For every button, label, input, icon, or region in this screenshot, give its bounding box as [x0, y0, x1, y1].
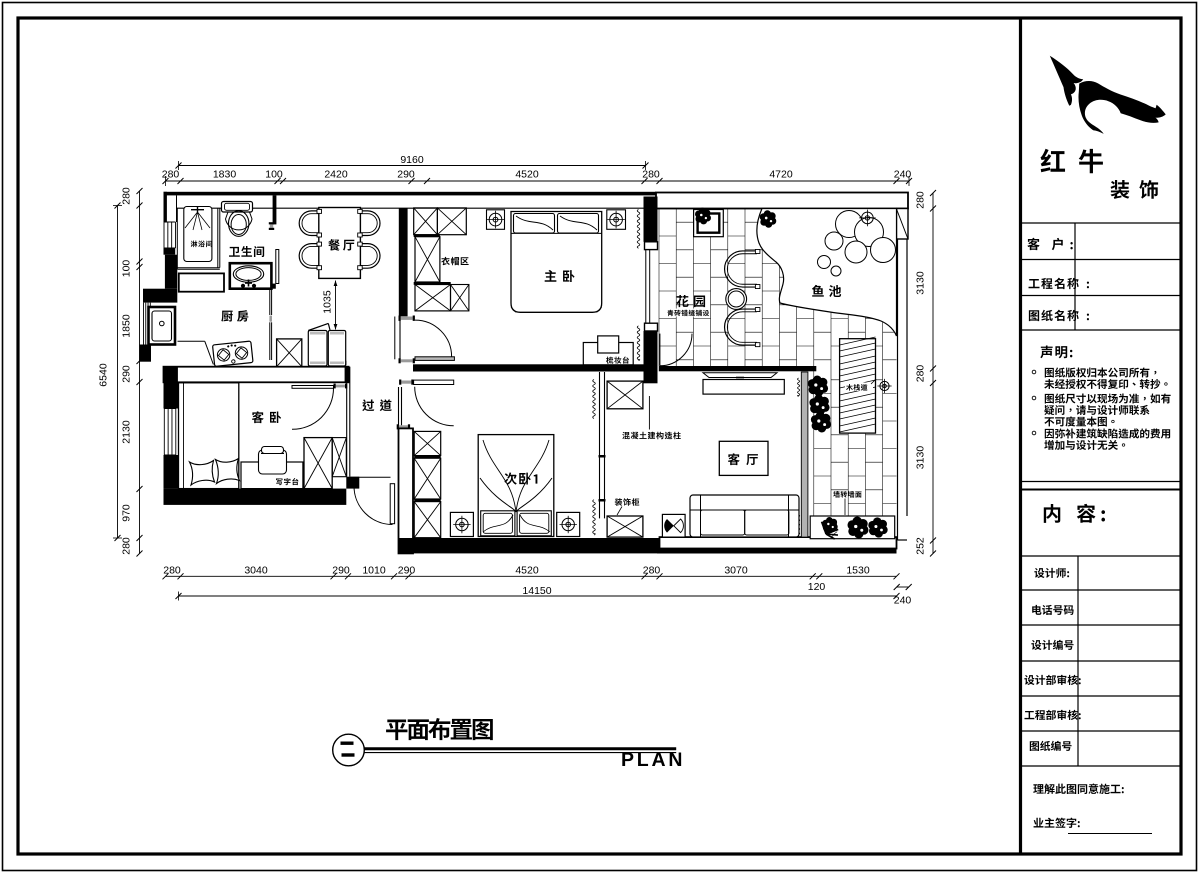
svg-text:100: 100: [265, 169, 283, 181]
svg-text:4720: 4720: [769, 169, 793, 181]
svg-text:1010: 1010: [362, 565, 386, 577]
svg-text:1035: 1035: [322, 290, 334, 314]
svg-text:14150: 14150: [522, 585, 551, 597]
svg-text:3130: 3130: [915, 271, 927, 295]
svg-text:1530: 1530: [846, 565, 870, 577]
svg-text:2420: 2420: [324, 169, 348, 181]
svg-text:290: 290: [397, 169, 415, 181]
svg-text:280: 280: [121, 187, 133, 205]
svg-text:280: 280: [162, 169, 180, 181]
svg-text:3130: 3130: [915, 446, 927, 470]
svg-text:280: 280: [915, 365, 927, 383]
svg-text:280: 280: [163, 565, 181, 577]
svg-text:280: 280: [121, 537, 133, 555]
svg-text:280: 280: [643, 565, 661, 577]
svg-text:3040: 3040: [244, 565, 268, 577]
svg-text:4520: 4520: [515, 565, 539, 577]
svg-text:9160: 9160: [400, 154, 424, 166]
svg-text:1830: 1830: [213, 169, 237, 181]
svg-text:6540: 6540: [98, 363, 110, 387]
svg-text:290: 290: [121, 365, 133, 383]
svg-text:100: 100: [121, 260, 133, 278]
svg-text:4520: 4520: [515, 169, 539, 181]
svg-text:2130: 2130: [121, 420, 133, 444]
svg-text:290: 290: [332, 565, 350, 577]
svg-text:290: 290: [398, 565, 416, 577]
svg-text:120: 120: [808, 581, 826, 593]
svg-text:1850: 1850: [121, 314, 133, 338]
svg-text:3070: 3070: [724, 565, 748, 577]
svg-text:970: 970: [121, 504, 133, 522]
svg-text:240: 240: [894, 169, 912, 181]
svg-text:PLAN: PLAN: [621, 749, 685, 771]
svg-text:280: 280: [642, 169, 660, 181]
svg-text:252: 252: [915, 537, 927, 555]
svg-text:280: 280: [915, 191, 927, 209]
